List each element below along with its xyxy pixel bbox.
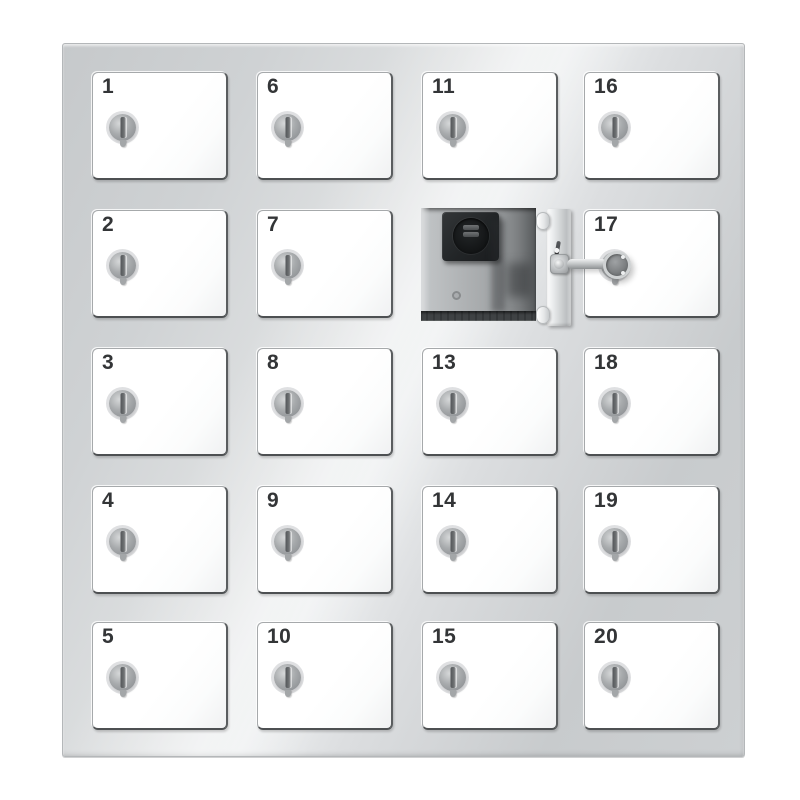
keyhole-lock-icon[interactable] (274, 528, 301, 555)
door-7[interactable]: 7 (257, 210, 393, 318)
door-8[interactable]: 8 (257, 348, 393, 456)
door-number: 16 (594, 75, 618, 99)
keyhole-lock-icon[interactable] (109, 252, 136, 279)
door-grid: 12345678910111314151617181920 (63, 44, 744, 756)
door-20[interactable]: 20 (584, 622, 720, 730)
keyhole-lock-icon[interactable] (274, 390, 301, 417)
keyhole-lock-icon[interactable] (601, 528, 628, 555)
door-number: 1 (102, 75, 114, 99)
door-number: 9 (267, 489, 279, 513)
door-3[interactable]: 3 (92, 348, 228, 456)
door-6[interactable]: 6 (257, 72, 393, 180)
door-hinge-bottom (536, 306, 550, 324)
door-18[interactable]: 18 (584, 348, 720, 456)
charging-port-slot-icon (463, 232, 479, 237)
key-shaft[interactable] (567, 259, 607, 269)
door-10[interactable]: 10 (257, 622, 393, 730)
product-image: 12345678910111314151617181920 (0, 0, 800, 800)
keyhole-lock-icon[interactable] (601, 390, 628, 417)
door-number: 4 (102, 489, 114, 513)
lock-shadow (507, 263, 531, 297)
compartment-floor-mat (421, 311, 536, 321)
interior-left-wall-highlight (421, 208, 430, 321)
keyhole-lock-icon[interactable] (439, 390, 466, 417)
door-14[interactable]: 14 (422, 486, 558, 594)
keyhole-lock-icon[interactable] (109, 664, 136, 691)
keyhole-lock-icon[interactable] (109, 114, 136, 141)
keyhole-lock-icon[interactable] (439, 528, 466, 555)
charging-port-slot-icon (463, 225, 479, 230)
door-number: 7 (267, 213, 279, 237)
door-number: 3 (102, 351, 114, 375)
keyhole-lock-icon[interactable] (439, 114, 466, 141)
door-number: 13 (432, 351, 456, 375)
door-number: 11 (432, 75, 455, 99)
door-19[interactable]: 19 (584, 486, 720, 594)
door-9[interactable]: 9 (257, 486, 393, 594)
door-number: 19 (594, 489, 618, 513)
keyhole-lock-icon[interactable] (274, 252, 301, 279)
door-number: 14 (432, 489, 456, 513)
door-11[interactable]: 11 (422, 72, 558, 180)
door-5[interactable]: 5 (92, 622, 228, 730)
door-4[interactable]: 4 (92, 486, 228, 594)
door-number: 15 (432, 625, 456, 649)
door-number: 5 (102, 625, 114, 649)
keyhole-lock-icon[interactable] (274, 114, 301, 141)
door-2[interactable]: 2 (92, 210, 228, 318)
door-16[interactable]: 16 (584, 72, 720, 180)
door-number: 8 (267, 351, 279, 375)
door-number: 10 (267, 625, 291, 649)
open-compartment (421, 208, 646, 330)
key-head[interactable] (603, 251, 631, 279)
door-number: 2 (102, 213, 114, 237)
door-number: 18 (594, 351, 618, 375)
keyhole-lock-icon[interactable] (601, 114, 628, 141)
keyhole-lock-icon[interactable] (274, 664, 301, 691)
cable-grommet-hole (452, 291, 461, 300)
door-1[interactable]: 1 (92, 72, 228, 180)
door-13[interactable]: 13 (422, 348, 558, 456)
locker-cabinet: 12345678910111314151617181920 (62, 43, 745, 757)
door-number: 6 (267, 75, 279, 99)
charging-port-recess (453, 218, 489, 254)
keyhole-lock-icon[interactable] (109, 390, 136, 417)
door-hinge-top (536, 212, 550, 230)
door-15[interactable]: 15 (422, 622, 558, 730)
keyhole-lock-icon[interactable] (439, 664, 466, 691)
door-number: 20 (594, 625, 618, 649)
keyhole-lock-icon[interactable] (109, 528, 136, 555)
door-shadow (491, 220, 505, 312)
keyhole-lock-icon[interactable] (601, 664, 628, 691)
open-compartment-interior (421, 208, 536, 321)
